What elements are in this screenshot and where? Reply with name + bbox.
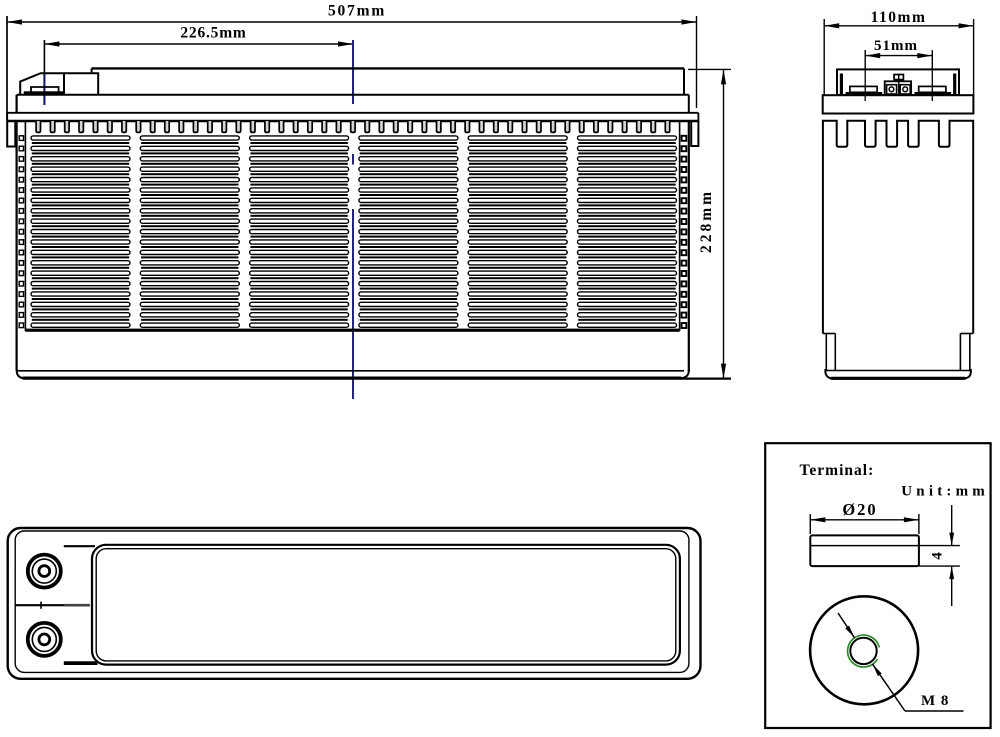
svg-text:507mm: 507mm	[328, 3, 386, 20]
svg-text:Ø20: Ø20	[842, 500, 877, 519]
svg-text:Terminal:: Terminal:	[800, 462, 875, 479]
svg-text:51mm: 51mm	[874, 38, 918, 54]
svg-text:110mm: 110mm	[871, 9, 927, 26]
svg-text:4: 4	[930, 552, 946, 560]
svg-text:Unit:mm: Unit:mm	[901, 484, 989, 500]
svg-text:226.5mm: 226.5mm	[180, 25, 246, 42]
svg-text:228mm: 228mm	[698, 189, 715, 253]
svg-text:M 8: M 8	[921, 693, 949, 709]
